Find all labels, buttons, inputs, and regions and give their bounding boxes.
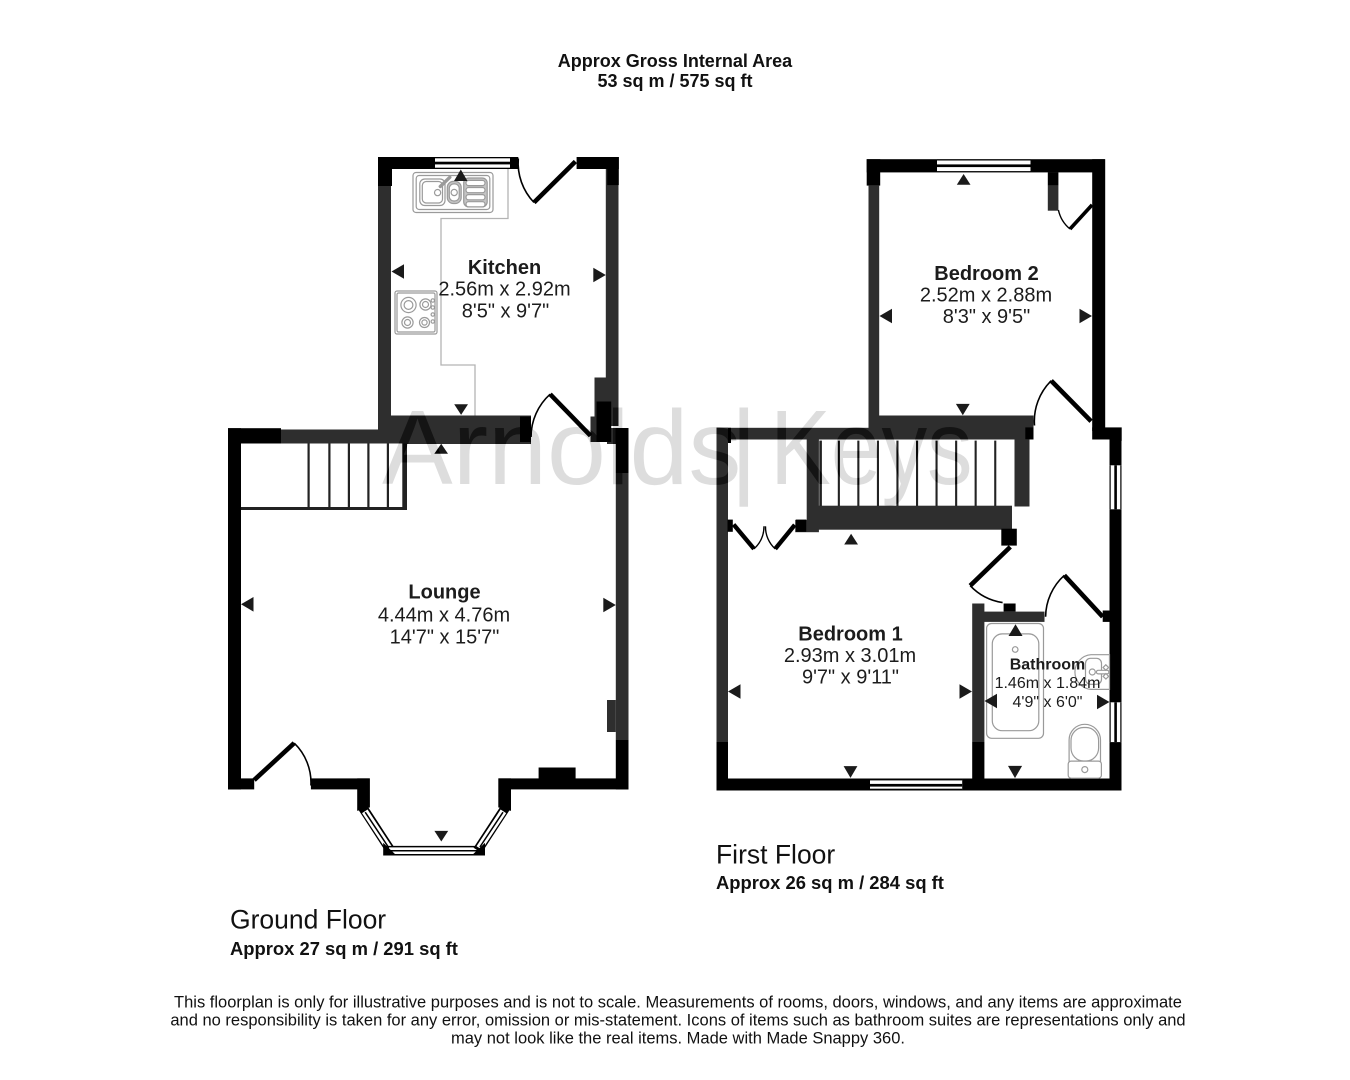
- svg-text:Bedroom 1: Bedroom 1: [798, 624, 902, 646]
- svg-text:4'9" x 6'0": 4'9" x 6'0": [1013, 694, 1083, 711]
- svg-text:2.52m x 2.88m: 2.52m x 2.88m: [920, 285, 1052, 307]
- svg-text:Keys: Keys: [770, 389, 973, 507]
- svg-text:Approx 27 sq m / 291 sq ft: Approx 27 sq m / 291 sq ft: [230, 938, 458, 959]
- svg-text:4.44m x 4.76m: 4.44m x 4.76m: [378, 605, 510, 627]
- svg-text:9'7" x 9'11": 9'7" x 9'11": [802, 667, 899, 689]
- svg-text:8'3" x 9'5": 8'3" x 9'5": [943, 306, 1030, 328]
- svg-text:8'5" x 9'7": 8'5" x 9'7": [462, 301, 549, 323]
- svg-text:First Floor: First Floor: [716, 840, 835, 870]
- svg-text:14'7" x 15'7": 14'7" x 15'7": [390, 627, 500, 649]
- svg-text:and no responsibility is taken: and no responsibility is taken for any e…: [170, 1012, 1185, 1030]
- svg-text:Arnolds: Arnolds: [382, 389, 741, 507]
- svg-text:Ground Floor: Ground Floor: [230, 905, 386, 935]
- svg-text:53 sq m / 575 sq ft: 53 sq m / 575 sq ft: [597, 71, 752, 91]
- svg-text:1.46m x 1.84m: 1.46m x 1.84m: [995, 675, 1101, 692]
- svg-text:Lounge: Lounge: [408, 582, 480, 604]
- svg-text:2.93m x 3.01m: 2.93m x 3.01m: [784, 645, 916, 667]
- svg-text:Bedroom 2: Bedroom 2: [934, 263, 1038, 285]
- svg-text:Approx 26 sq m / 284 sq ft: Approx 26 sq m / 284 sq ft: [716, 872, 944, 893]
- svg-text:Kitchen: Kitchen: [468, 257, 541, 279]
- svg-text:may not look like the real ite: may not look like the real items. Made w…: [451, 1030, 905, 1048]
- svg-text:2.56m x 2.92m: 2.56m x 2.92m: [438, 279, 570, 301]
- svg-text:This floorplan is only for ill: This floorplan is only for illustrative …: [174, 994, 1182, 1012]
- svg-text:Approx Gross Internal Area: Approx Gross Internal Area: [558, 51, 793, 71]
- svg-text:Bathroom: Bathroom: [1010, 657, 1086, 674]
- svg-text:|: |: [730, 389, 758, 507]
